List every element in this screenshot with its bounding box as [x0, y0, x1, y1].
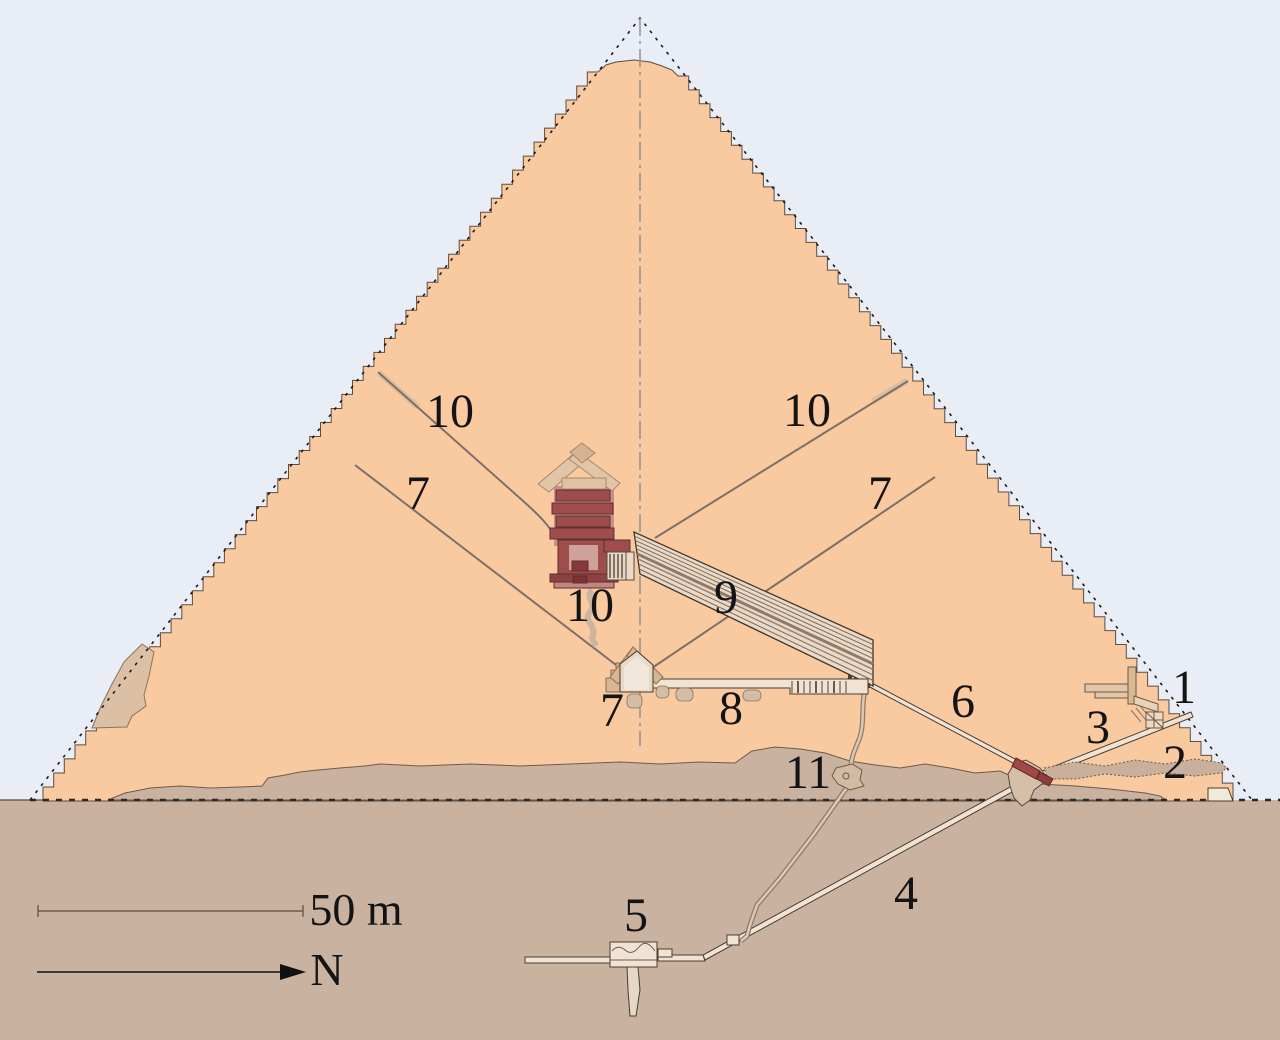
- label-subterranean-chamber: 5: [624, 892, 648, 940]
- label-king-shaft-north: 10: [426, 388, 474, 436]
- label-well-shaft: 11: [785, 749, 831, 797]
- dead-end-passage: [525, 957, 610, 963]
- label-queen-chamber: 7: [600, 687, 624, 735]
- label-descending-passage-lower: 4: [894, 870, 918, 918]
- scale-bar-label: 50 m: [309, 887, 402, 933]
- pyramid-cross-section: [0, 0, 1280, 1040]
- label-robbers-tunnel: 2: [1163, 739, 1187, 787]
- diagram-stage: 1 2 3 4 5 6 7 7 7 8 9 10 10 10 11 50 m N: [0, 0, 1280, 1040]
- entrance-bar-upper: [1085, 684, 1128, 692]
- relieving-slab-4: [550, 528, 614, 539]
- antechamber-beam: [604, 540, 630, 552]
- north-label: N: [310, 947, 343, 993]
- label-king-shaft-south: 10: [783, 387, 831, 435]
- casing-stone-remnant: [1208, 788, 1233, 801]
- label-descending-passage-upper: 3: [1086, 704, 1110, 752]
- label-entrance: 1: [1172, 664, 1196, 712]
- label-queen-shaft-north: 7: [406, 470, 430, 518]
- passage-recess: [658, 949, 672, 957]
- relieving-slab-2: [552, 503, 613, 514]
- label-grand-gallery: 9: [714, 574, 738, 622]
- relieving-slab-1: [556, 490, 610, 501]
- well-shaft-junction: [727, 935, 739, 945]
- label-horizontal-passage: 8: [719, 685, 743, 733]
- relieving-slab-3: [556, 516, 610, 527]
- gallery-connector: [626, 552, 634, 580]
- label-queen-shaft-south: 7: [868, 470, 892, 518]
- sarcophagus: [572, 561, 588, 571]
- relieving-cap: [562, 478, 606, 489]
- entrance-bar-lower: [1095, 692, 1128, 698]
- label-king-chamber: 10: [566, 582, 614, 630]
- label-ascending-passage: 6: [951, 678, 975, 726]
